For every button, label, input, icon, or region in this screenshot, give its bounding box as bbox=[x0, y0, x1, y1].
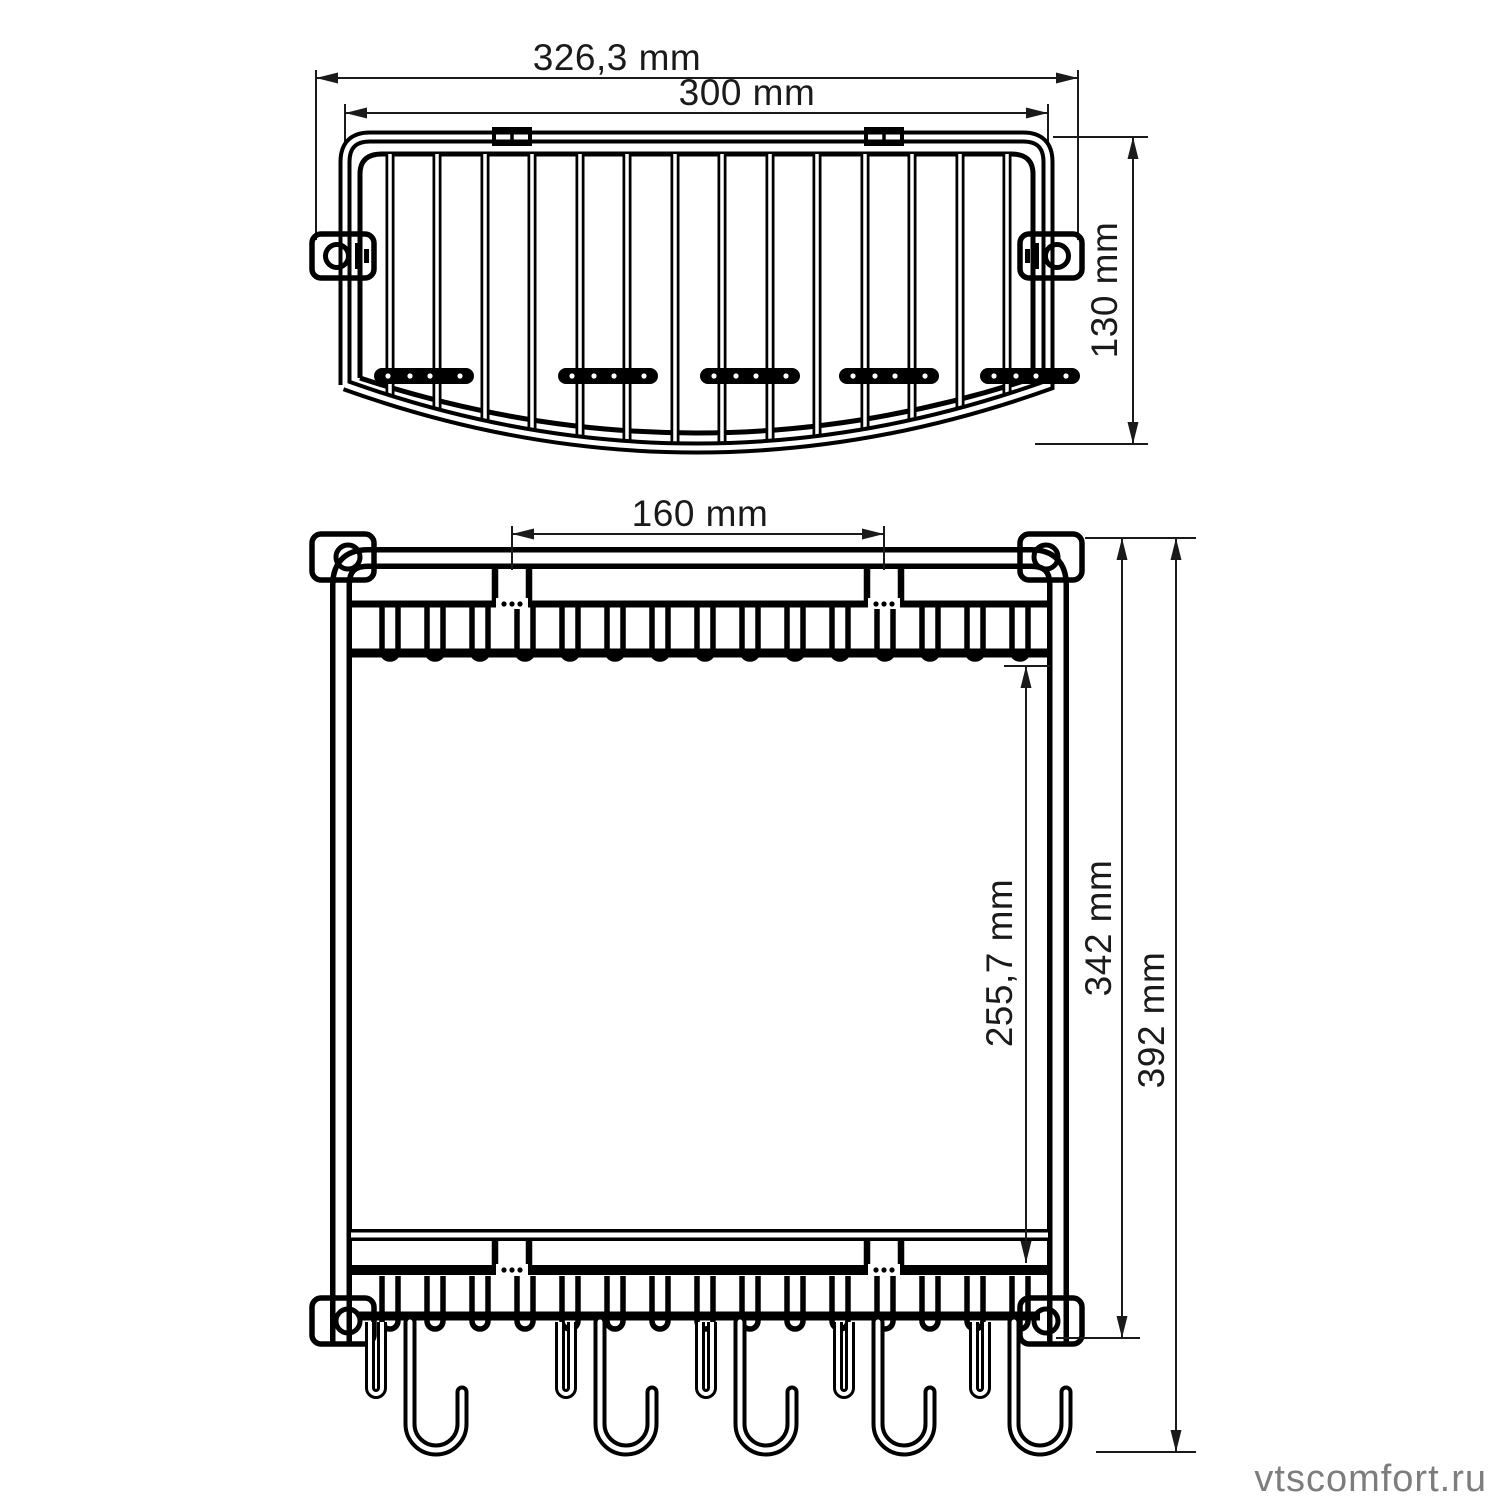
dim-shelf-gap: 255,7 mm bbox=[979, 666, 1050, 1263]
watermark: vtscomfort.ru bbox=[1254, 1458, 1487, 1500]
shelf-wire-loops bbox=[382, 1276, 1028, 1329]
top-view: 326,3 mm 300 mm 130 mm bbox=[312, 37, 1148, 448]
arrowhead bbox=[1171, 538, 1182, 560]
arrowhead bbox=[1171, 1430, 1182, 1452]
clip-plates bbox=[495, 568, 901, 606]
foot-bar bbox=[374, 368, 474, 384]
dim-label-outer-width: 326,3 mm bbox=[533, 37, 702, 78]
basket-inner-rim bbox=[360, 154, 1033, 433]
technical-drawing-page: 326,3 mm 300 mm 130 mm bbox=[0, 0, 1503, 1503]
foot-bar bbox=[839, 368, 939, 384]
drawing-canvas: 326,3 mm 300 mm 130 mm bbox=[0, 0, 1503, 1503]
dim-label-inner-width: 300 mm bbox=[679, 72, 816, 113]
arrowhead bbox=[1056, 73, 1078, 84]
hook-unit bbox=[370, 1322, 462, 1450]
arrowhead bbox=[1021, 1241, 1032, 1263]
foot-bar bbox=[558, 368, 658, 384]
basket-plan bbox=[345, 129, 1048, 448]
hook-row bbox=[370, 1322, 1066, 1450]
lower-shelf bbox=[351, 1235, 1048, 1329]
basket-wire-grid bbox=[390, 154, 1007, 448]
hook-unit bbox=[700, 1322, 792, 1450]
dim-label-overall-height: 392 mm bbox=[1131, 952, 1172, 1089]
hook-unit bbox=[838, 1322, 930, 1450]
arrowhead bbox=[1128, 422, 1139, 444]
arrowhead bbox=[862, 529, 884, 540]
hook-unit bbox=[560, 1322, 652, 1450]
arrowhead bbox=[512, 529, 534, 540]
arrowhead bbox=[1117, 538, 1128, 560]
foot-bar bbox=[980, 368, 1080, 384]
front-view: 160 mm 255,7 mm 342 mm 392 mm bbox=[312, 493, 1196, 1452]
frame-tube-core bbox=[341, 558, 1058, 1344]
foot-bars bbox=[374, 368, 1080, 384]
upper-shelf bbox=[351, 568, 1048, 659]
foot-bar bbox=[700, 368, 800, 384]
arrowhead bbox=[1026, 108, 1048, 119]
arrowhead bbox=[345, 108, 367, 119]
frame bbox=[341, 558, 1058, 1344]
dim-label-clip-spacing: 160 mm bbox=[632, 493, 769, 534]
arrowhead bbox=[1117, 1316, 1128, 1338]
arrowhead bbox=[1021, 666, 1032, 688]
frame-tube bbox=[341, 558, 1058, 1344]
arrowhead bbox=[1128, 137, 1139, 159]
dim-label-frame-height: 342 mm bbox=[1078, 860, 1119, 997]
dim-label-shelf-gap: 255,7 mm bbox=[979, 879, 1020, 1048]
arrowhead bbox=[316, 73, 338, 84]
dim-label-depth: 130 mm bbox=[1084, 222, 1125, 359]
